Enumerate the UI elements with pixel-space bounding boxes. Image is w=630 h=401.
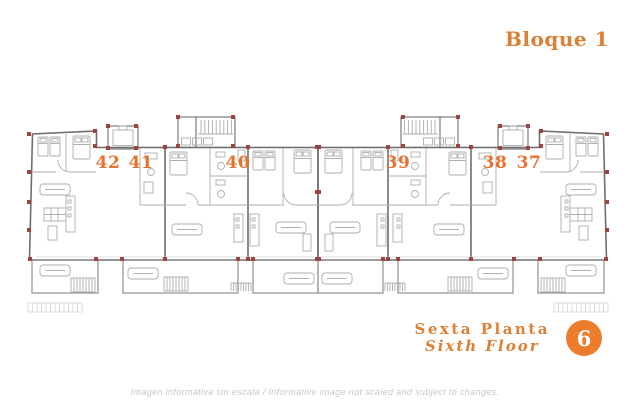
unit-number-37: 37 bbox=[517, 153, 542, 173]
unit-number-38: 38 bbox=[483, 153, 508, 173]
unit-number-41: 41 bbox=[129, 153, 154, 173]
floor-name-spanish: Sexta Planta bbox=[415, 321, 550, 338]
columns bbox=[27, 115, 319, 261]
page: Bloque 1 bbox=[0, 0, 630, 401]
entrance-canopy bbox=[28, 303, 82, 312]
unit-number-42: 42 bbox=[96, 153, 121, 173]
terraces bbox=[28, 260, 318, 312]
floor-plan-right-half bbox=[317, 115, 609, 312]
unit-number-39: 39 bbox=[386, 153, 411, 173]
disclaimer-text: Imagen informativa sin escala / Informat… bbox=[0, 387, 630, 397]
floor-number-badge: 6 bbox=[566, 320, 602, 356]
floor-name: Sexta Planta Sixth Floor bbox=[415, 321, 550, 356]
floor-number: 6 bbox=[577, 326, 592, 351]
elevator bbox=[108, 126, 138, 149]
unit-number-40: 40 bbox=[226, 153, 251, 173]
floor-label: Sexta Planta Sixth Floor 6 bbox=[415, 320, 602, 356]
stair-tower bbox=[178, 117, 235, 148]
floor-plan-left-half bbox=[27, 115, 319, 312]
unit-interior-a bbox=[33, 134, 165, 240]
floor-name-english: Sixth Floor bbox=[415, 338, 550, 355]
